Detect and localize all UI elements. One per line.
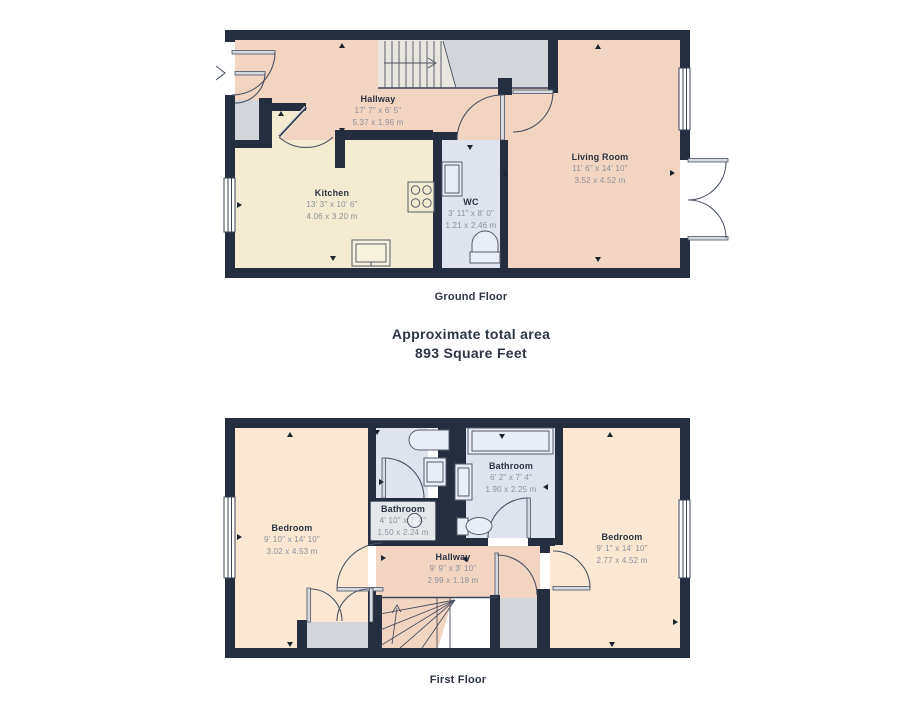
room-dimensions-metric: 5.37 x 1.96 m <box>352 117 403 129</box>
total-area-title: Approximate total area <box>392 326 550 342</box>
first-floor-caption: First Floor <box>430 674 487 686</box>
room-name: Living Room <box>572 151 629 163</box>
room-name: Hallway <box>427 551 478 563</box>
ceiling-light-icon <box>407 513 422 528</box>
room-dimensions-imperial: 9' 10" x 14' 10" <box>264 534 320 546</box>
room-dimensions-imperial: 6' 2" x 7' 4" <box>485 472 536 484</box>
room-dimensions-metric: 1.50 x 2.24 m <box>373 527 433 539</box>
room-dimensions-imperial: 9' 9" x 3' 10" <box>427 563 478 575</box>
room-dimensions-metric: 2.77 x 4.52 m <box>596 555 647 567</box>
room-dimensions-imperial: 17' 7" x 6' 5" <box>352 105 403 117</box>
wc-sink-icon <box>442 162 462 196</box>
room-label-hallway: Hallway 17' 7" x 6' 5" 5.37 x 1.96 m <box>352 93 403 128</box>
room-dimensions-imperial: 9' 1" x 14' 10" <box>596 543 647 555</box>
hob-icon <box>408 182 434 212</box>
ground-floor-caption: Ground Floor <box>435 291 508 303</box>
room-name: Bedroom <box>264 522 320 534</box>
entrance-arrow-icon <box>216 66 225 80</box>
sink-icon <box>424 458 446 486</box>
room-dimensions-metric: 3.52 x 4.52 m <box>572 175 629 187</box>
room-label-bedroom-right: Bedroom 9' 1" x 14' 10" 2.77 x 4.52 m <box>596 531 647 566</box>
room-label-hallway-first: Hallway 9' 9" x 3' 10" 2.99 x 1.18 m <box>427 551 478 586</box>
room-dimensions-metric: 2.99 x 1.18 m <box>427 575 478 587</box>
room-name: WC <box>445 196 496 208</box>
room-dimensions-metric: 3.02 x 4.53 m <box>264 546 320 558</box>
room-label-bathroom: Bathroom 6' 2" x 7' 4" 1.90 x 2.25 m <box>485 460 536 495</box>
kitchen-sink-icon <box>352 240 390 266</box>
room-label-bathroom-small: Bathroom 4' 10" x 7' 4" 1.50 x 2.24 m <box>370 501 436 541</box>
toilet-icon <box>457 518 492 536</box>
room-dimensions-metric: 4.06 x 3.20 m <box>306 211 357 223</box>
room-name: Bathroom <box>485 460 536 472</box>
room-name: Kitchen <box>306 187 357 199</box>
room-dimensions-metric: 1.21 x 2.46 m <box>445 220 496 232</box>
room-name: Bathroom <box>373 503 433 515</box>
room-label-wc: WC 3' 11" x 8' 0" 1.21 x 2.46 m <box>445 196 496 231</box>
room-dimensions-imperial: 4' 10" x 7' 4" <box>373 515 433 527</box>
bathtub-icon <box>409 430 449 450</box>
room-dimensions-imperial: 3' 11" x 8' 0" <box>445 208 496 220</box>
total-area-value: 893 Square Feet <box>415 345 527 361</box>
floorplan-page: Hallway 17' 7" x 6' 5" 5.37 x 1.96 m Kit… <box>0 0 900 724</box>
room-dimensions-metric: 1.90 x 2.25 m <box>485 484 536 496</box>
room-name: Hallway <box>352 93 403 105</box>
room-name: Bedroom <box>596 531 647 543</box>
room-dimensions-imperial: 13' 3" x 10' 6" <box>306 199 357 211</box>
french-doors <box>688 159 728 241</box>
room-label-bedroom-left: Bedroom 9' 10" x 14' 10" 3.02 x 4.53 m <box>264 522 320 557</box>
room-dimensions-imperial: 11' 6" x 14' 10" <box>572 163 629 175</box>
ground-floor-plan <box>205 25 740 283</box>
room-label-kitchen: Kitchen 13' 3" x 10' 6" 4.06 x 3.20 m <box>306 187 357 222</box>
sink-icon <box>455 464 472 500</box>
room-label-living-room: Living Room 11' 6" x 14' 10" 3.52 x 4.52… <box>572 151 629 186</box>
toilet-icon <box>470 231 500 263</box>
bathtub-icon <box>468 428 553 454</box>
